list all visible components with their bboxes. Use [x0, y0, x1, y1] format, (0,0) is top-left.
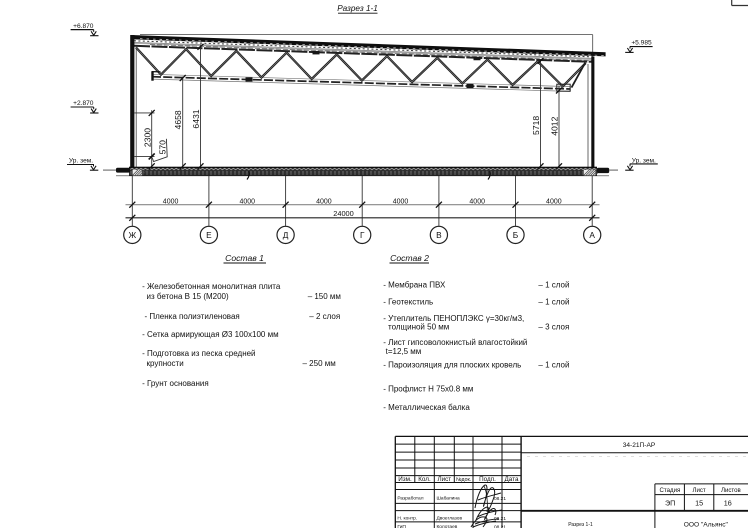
svg-text:- Геотекстиль: - Геотекстиль — [383, 298, 433, 307]
svg-text:из бетона В 15 (М200): из бетона В 15 (М200) — [147, 292, 230, 301]
svg-text:t=12,5 мм: t=12,5 мм — [386, 347, 422, 356]
svg-text:4012: 4012 — [549, 116, 559, 135]
svg-text:Е: Е — [206, 230, 212, 240]
svg-text:крупности: крупности — [147, 359, 184, 368]
svg-text:08.21: 08.21 — [494, 496, 506, 502]
svg-text:- Лист гипсоволокнистый влагос: - Лист гипсоволокнистый влагостойкий — [383, 338, 527, 347]
svg-text:В: В — [436, 230, 442, 240]
svg-text:Кол.: Кол. — [418, 476, 431, 483]
svg-text:- Профлист Н 75х0.8 мм: - Профлист Н 75х0.8 мм — [383, 385, 473, 394]
svg-text:Ур. зем.: Ур. зем. — [69, 158, 93, 165]
svg-text:4000: 4000 — [316, 198, 332, 205]
svg-text:Разработал: Разработал — [397, 495, 423, 501]
svg-text:– 1 слой: – 1 слой — [538, 280, 569, 289]
svg-text:4000: 4000 — [239, 198, 255, 205]
svg-text:Разрез 1-1: Разрез 1-1 — [568, 522, 593, 528]
svg-text:ГиП: ГиП — [397, 524, 406, 528]
svg-text:Изм.: Изм. — [398, 476, 412, 483]
svg-text:Стадия: Стадия — [660, 487, 681, 494]
svg-text:- Грунт основания: - Грунт основания — [142, 379, 209, 388]
svg-text:- Пленка полиэтиленовая: - Пленка полиэтиленовая — [145, 312, 240, 321]
svg-text:2300: 2300 — [142, 128, 152, 147]
svg-text:- Металлическая балка: - Металлическая балка — [383, 403, 470, 412]
svg-text:- Пароизоляция для плоских кро: - Пароизоляция для плоских кровель — [383, 361, 521, 370]
svg-text:Состав 1: Состав 1 — [225, 253, 264, 263]
svg-text:4000: 4000 — [469, 198, 485, 205]
svg-text:Шабалина: Шабалина — [437, 495, 460, 501]
svg-text:– 1 слой: – 1 слой — [538, 298, 569, 307]
svg-text:толщиной 50 мм: толщиной 50 мм — [388, 323, 449, 332]
svg-text:Н. контр.: Н. контр. — [397, 515, 417, 521]
svg-text:- Мембрана ПВХ: - Мембрана ПВХ — [383, 280, 446, 289]
svg-text:Колотаев: Колотаев — [437, 524, 458, 528]
svg-text:– 150 мм: – 150 мм — [308, 292, 341, 301]
svg-text:4000: 4000 — [163, 198, 179, 205]
svg-text:Г: Г — [360, 230, 365, 240]
svg-text:А: А — [589, 230, 595, 240]
svg-text:16: 16 — [724, 499, 732, 508]
svg-text:Разрез 1-1: Разрез 1-1 — [337, 4, 378, 13]
svg-text:– 250 мм: – 250 мм — [303, 359, 336, 368]
svg-text:570: 570 — [157, 140, 167, 155]
svg-text:34-21П-АР: 34-21П-АР — [623, 442, 656, 449]
svg-text:5718: 5718 — [531, 116, 541, 135]
svg-text:+2.870: +2.870 — [73, 100, 94, 107]
svg-text:4000: 4000 — [546, 198, 562, 205]
svg-text:Ж: Ж — [128, 230, 136, 240]
svg-text:+6.870: +6.870 — [73, 23, 94, 30]
svg-text:Д: Д — [283, 230, 289, 240]
svg-text:ООО "Альянс": ООО "Альянс" — [684, 521, 729, 528]
svg-text:– 1 слой: – 1 слой — [538, 361, 569, 370]
svg-text:Дата: Дата — [505, 476, 519, 483]
svg-text:№док.: №док. — [456, 477, 471, 483]
svg-text:- Железобетонная монолитная п: - Железобетонная монолитная плита — [142, 282, 281, 291]
svg-text:4658: 4658 — [173, 110, 183, 129]
svg-text:Двоеглазов: Двоеглазов — [437, 515, 463, 521]
svg-text:Б: Б — [513, 230, 519, 240]
svg-text:ЭП: ЭП — [665, 499, 675, 508]
svg-text:08.21: 08.21 — [494, 524, 506, 528]
svg-text:24000: 24000 — [333, 209, 354, 218]
svg-text:– 2 слоя: – 2 слоя — [309, 312, 340, 321]
svg-text:+5.985: +5.985 — [631, 40, 652, 47]
svg-text:Лист: Лист — [437, 476, 451, 483]
svg-text:– 3 слоя: – 3 слоя — [538, 323, 569, 332]
svg-text:6431: 6431 — [191, 109, 201, 128]
svg-text:Лист: Лист — [692, 487, 705, 494]
svg-text:15: 15 — [695, 499, 703, 508]
svg-text:Состав 2: Состав 2 — [390, 253, 429, 263]
svg-text:4000: 4000 — [393, 198, 409, 205]
svg-text:Листов: Листов — [721, 487, 741, 494]
svg-text:- Подготовка из песка средней: - Подготовка из песка средней — [142, 349, 255, 358]
svg-text:- Сетка армирующая Ø3 100х100: - Сетка армирующая Ø3 100х100 мм — [142, 330, 278, 339]
svg-text:Подп.: Подп. — [479, 476, 496, 483]
